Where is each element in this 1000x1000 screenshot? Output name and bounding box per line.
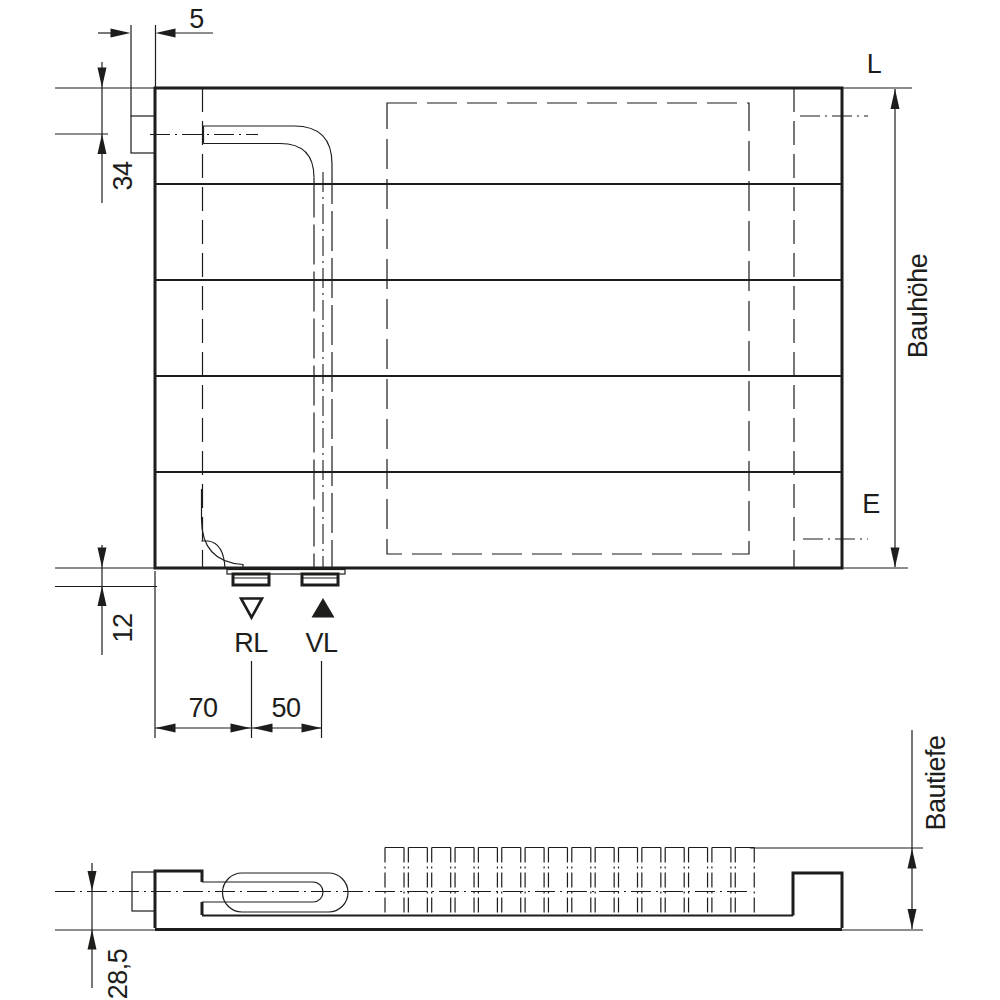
dim-tab-width-value: 5 bbox=[189, 4, 204, 34]
drawing-canvas: RL VL L E 5 bbox=[0, 0, 1000, 1000]
dim-connector-drop-value: 12 bbox=[108, 613, 138, 642]
l-level-label: L bbox=[867, 49, 882, 79]
dim-axis-to-back-value: 28,5 bbox=[103, 949, 133, 1000]
bautiefe-label: Bautiefe bbox=[921, 735, 951, 830]
rl-label: RL bbox=[234, 628, 268, 658]
dim-top-to-pipe-axis-value: 34 bbox=[108, 161, 138, 191]
dim-edge-to-rl-value: 70 bbox=[188, 693, 217, 723]
vl-label: VL bbox=[305, 628, 338, 658]
paper-background bbox=[0, 0, 1000, 1000]
e-level-label: E bbox=[862, 489, 880, 519]
bauhoehe-label: Bauhöhe bbox=[903, 254, 933, 359]
radiator-dimension-drawing: RL VL L E 5 bbox=[0, 0, 1000, 1000]
dim-rl-to-vl-value: 50 bbox=[271, 693, 300, 723]
